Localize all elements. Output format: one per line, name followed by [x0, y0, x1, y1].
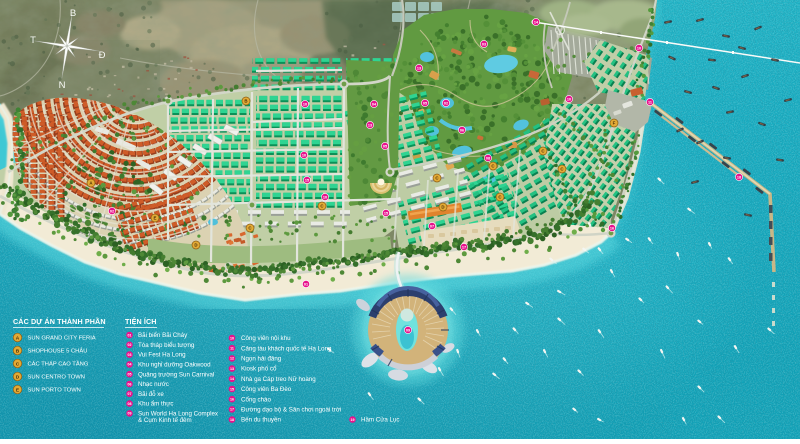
- svg-text:B: B: [70, 8, 76, 19]
- svg-text:Khu ẩm thực: Khu ẩm thực: [138, 401, 173, 408]
- svg-text:Bãi đỗ xe: Bãi đỗ xe: [138, 391, 164, 398]
- svg-text:10: 10: [567, 97, 571, 101]
- svg-text:05: 05: [423, 101, 427, 105]
- svg-text:06: 06: [460, 128, 464, 132]
- svg-text:N: N: [59, 80, 66, 91]
- svg-text:Cảng tàu khách quốc tế Hạ Long: Cảng tàu khách quốc tế Hạ Long: [241, 345, 332, 352]
- svg-text:SUN CENTRO TOWN: SUN CENTRO TOWN: [28, 375, 85, 381]
- svg-text:A: A: [16, 335, 20, 341]
- svg-text:Ngọn hải đăng: Ngọn hải đăng: [241, 356, 282, 363]
- svg-text:B: B: [244, 99, 247, 104]
- svg-text:13: 13: [368, 123, 372, 127]
- svg-text:Tòa tháp biểu tượng: Tòa tháp biểu tượng: [138, 342, 195, 349]
- svg-text:10: 10: [303, 102, 307, 106]
- svg-text:08: 08: [128, 402, 132, 406]
- svg-text:11: 11: [648, 100, 652, 104]
- svg-text:15: 15: [384, 211, 388, 215]
- svg-text:09: 09: [128, 412, 132, 416]
- svg-text:Đ: Đ: [99, 50, 106, 61]
- svg-text:05: 05: [128, 373, 132, 377]
- svg-text:03: 03: [482, 42, 486, 46]
- svg-text:SUN PORTO TOWN: SUN PORTO TOWN: [28, 388, 81, 394]
- svg-text:01: 01: [128, 333, 132, 337]
- svg-text:10: 10: [302, 153, 306, 157]
- svg-text:Cổng chào: Cổng chào: [241, 396, 271, 403]
- svg-text:& Cụm Kinh tế đêm: & Cụm Kinh tế đêm: [138, 417, 192, 424]
- svg-text:04: 04: [128, 363, 132, 367]
- svg-text:E: E: [154, 216, 157, 221]
- svg-text:15: 15: [230, 387, 234, 391]
- svg-text:Nhà ga Cáp treo Nữ hoàng: Nhà ga Cáp treo Nữ hoàng: [241, 376, 316, 383]
- svg-text:Công viên Ba Đèo: Công viên Ba Đèo: [241, 386, 292, 393]
- svg-text:18: 18: [230, 418, 234, 422]
- svg-text:06: 06: [128, 382, 132, 386]
- svg-text:Khu nghỉ dưỡng Oakwood: Khu nghỉ dưỡng Oakwood: [138, 362, 211, 369]
- svg-text:15: 15: [305, 178, 309, 182]
- svg-text:14: 14: [230, 377, 234, 381]
- svg-text:Vui Fest Ha Long: Vui Fest Ha Long: [138, 352, 186, 359]
- svg-text:D: D: [194, 243, 197, 248]
- svg-text:D: D: [441, 205, 444, 210]
- svg-text:D: D: [16, 374, 20, 380]
- svg-text:01: 01: [304, 282, 308, 286]
- svg-text:09: 09: [406, 328, 410, 332]
- svg-text:13: 13: [230, 367, 234, 371]
- svg-text:Kiosk phố cổ: Kiosk phố cổ: [241, 366, 277, 373]
- svg-text:02: 02: [128, 343, 132, 347]
- svg-text:CÁC THÁP CAO TẦNG: CÁC THÁP CAO TẦNG: [28, 361, 89, 368]
- svg-text:B: B: [16, 348, 20, 354]
- svg-text:Đường dạo bộ & Sân chơi ngoài: Đường dạo bộ & Sân chơi ngoài trời: [241, 407, 341, 414]
- svg-text:18: 18: [737, 175, 741, 179]
- svg-text:05: 05: [383, 144, 387, 148]
- svg-text:Công viên nội khu: Công viên nội khu: [241, 335, 291, 342]
- svg-text:02: 02: [110, 209, 114, 213]
- svg-text:Bãi biển Bãi Cháy: Bãi biển Bãi Cháy: [138, 332, 188, 339]
- svg-text:Hầm Cửa Lục: Hầm Cửa Lục: [361, 417, 400, 424]
- svg-text:07: 07: [430, 224, 434, 228]
- svg-text:13: 13: [417, 66, 421, 70]
- svg-text:10: 10: [637, 46, 641, 50]
- svg-text:Quảng trường Sun Carnival: Quảng trường Sun Carnival: [138, 371, 214, 378]
- svg-text:C: C: [16, 361, 20, 367]
- svg-text:16: 16: [610, 226, 614, 230]
- svg-text:08: 08: [486, 156, 490, 160]
- svg-text:16: 16: [230, 398, 234, 402]
- svg-text:19: 19: [351, 418, 355, 422]
- svg-text:T: T: [30, 35, 36, 46]
- svg-text:17: 17: [230, 408, 234, 412]
- svg-text:SUN GRAND CITY FERIA: SUN GRAND CITY FERIA: [28, 336, 96, 342]
- svg-text:10: 10: [230, 336, 234, 340]
- svg-text:12: 12: [230, 357, 234, 361]
- svg-text:17: 17: [462, 245, 466, 249]
- svg-text:11: 11: [230, 347, 234, 351]
- svg-text:02: 02: [444, 101, 448, 105]
- svg-text:07: 07: [128, 392, 132, 396]
- svg-text:03: 03: [128, 353, 132, 357]
- svg-text:Nhạc nước: Nhạc nước: [138, 381, 169, 388]
- svg-text:Bến du thuyền: Bến du thuyền: [241, 417, 281, 424]
- svg-text:TIỆN ÍCH: TIỆN ÍCH: [125, 317, 157, 326]
- svg-text:10: 10: [323, 195, 327, 199]
- svg-text:CÁC DỰ ÁN THÀNH PHẦN: CÁC DỰ ÁN THÀNH PHẦN: [13, 316, 106, 326]
- svg-text:SHOPHOUSE 5 CHÂU: SHOPHOUSE 5 CHÂU: [28, 348, 88, 355]
- svg-text:F: F: [613, 121, 616, 126]
